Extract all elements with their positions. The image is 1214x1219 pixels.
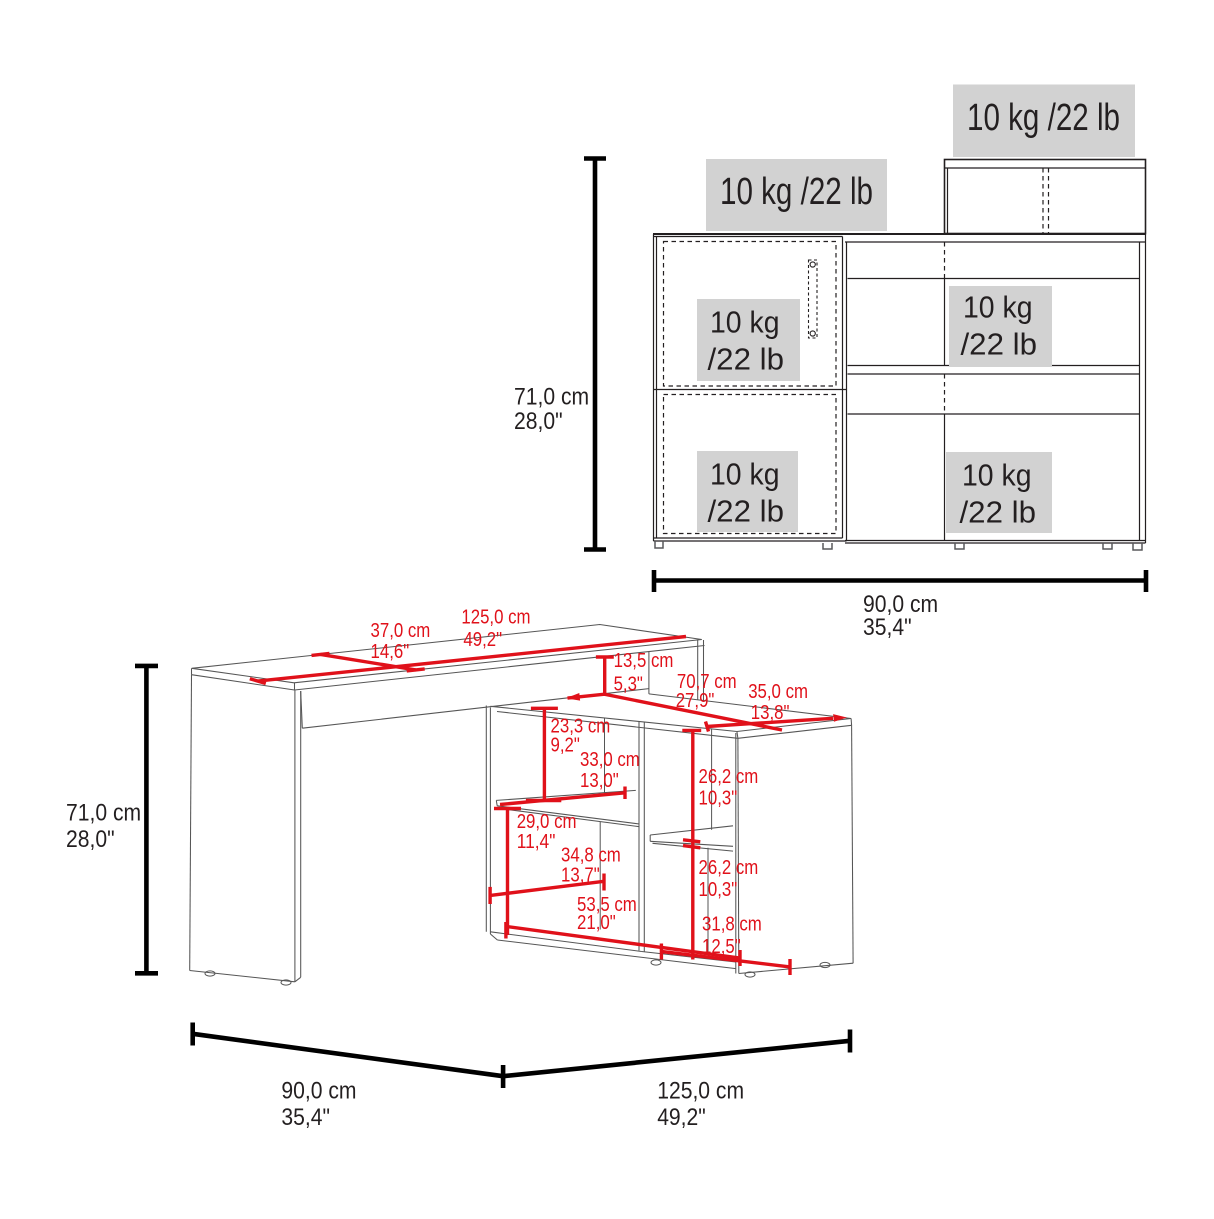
svg-text:29,0 cm: 29,0 cm: [517, 811, 577, 833]
svg-text:27,9": 27,9": [676, 690, 715, 712]
svg-text:10 kg /22 lb: 10 kg /22 lb: [967, 97, 1120, 139]
svg-text:10 kg: 10 kg: [710, 457, 780, 492]
svg-text:10 kg: 10 kg: [710, 305, 780, 340]
svg-text:35,4": 35,4": [863, 614, 912, 641]
svg-text:49,2": 49,2": [463, 629, 502, 651]
svg-text:10 kg: 10 kg: [963, 290, 1033, 325]
svg-text:35,0 cm: 35,0 cm: [748, 681, 808, 703]
svg-text:31,8 cm: 31,8 cm: [702, 914, 762, 936]
svg-text:34,8 cm: 34,8 cm: [561, 845, 621, 867]
svg-text:35,4": 35,4": [281, 1104, 330, 1131]
svg-text:71,0 cm: 71,0 cm: [66, 800, 141, 827]
svg-text:10,3": 10,3": [699, 788, 738, 810]
svg-text:13,0": 13,0": [580, 770, 619, 792]
svg-text:13,5 cm: 13,5 cm: [614, 650, 674, 672]
svg-text:11,4": 11,4": [517, 831, 556, 853]
svg-text:125,0 cm: 125,0 cm: [461, 607, 530, 629]
svg-text:13,7": 13,7": [561, 865, 600, 887]
svg-text:26,2 cm: 26,2 cm: [699, 857, 759, 879]
svg-text:28,0": 28,0": [66, 826, 115, 853]
svg-text:71,0 cm: 71,0 cm: [514, 384, 589, 411]
svg-text:37,0 cm: 37,0 cm: [371, 620, 431, 642]
svg-text:26,2 cm: 26,2 cm: [699, 766, 759, 788]
svg-text:125,0 cm: 125,0 cm: [657, 1078, 744, 1105]
svg-text:10 kg: 10 kg: [962, 458, 1032, 493]
svg-text:49,2": 49,2": [657, 1104, 706, 1131]
svg-text:/22 lb: /22 lb: [961, 327, 1038, 362]
svg-text:12,5": 12,5": [702, 936, 741, 958]
svg-text:9,2": 9,2": [551, 735, 580, 757]
svg-text:/22 lb: /22 lb: [960, 495, 1037, 530]
svg-text:10 kg /22 lb: 10 kg /22 lb: [720, 171, 873, 213]
svg-text:14,6": 14,6": [371, 641, 410, 663]
svg-text:/22 lb: /22 lb: [708, 494, 785, 529]
svg-text:13,8": 13,8": [751, 702, 790, 724]
svg-text:28,0": 28,0": [514, 408, 563, 435]
svg-text:10,3": 10,3": [699, 879, 738, 901]
svg-text:/22 lb: /22 lb: [708, 342, 785, 377]
svg-text:21,0": 21,0": [577, 912, 616, 934]
svg-text:90,0 cm: 90,0 cm: [281, 1078, 356, 1105]
svg-text:5,3": 5,3": [614, 674, 643, 696]
svg-text:33,0 cm: 33,0 cm: [580, 749, 640, 771]
